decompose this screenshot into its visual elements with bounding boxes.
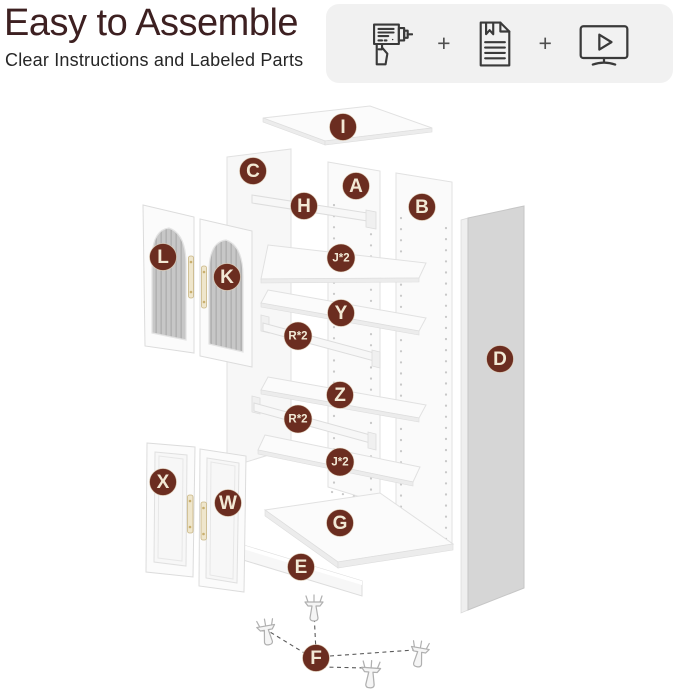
part-glass-door-l <box>143 205 194 353</box>
part-label-i: I <box>330 114 357 141</box>
part-label-d: D <box>487 346 514 373</box>
part-divider-panel-b <box>396 173 452 550</box>
part-panel-door-w <box>199 449 246 592</box>
part-label-z: Z <box>327 382 354 409</box>
part-legs-f <box>256 595 431 688</box>
part-label-w: W <box>215 490 242 517</box>
part-label-g: G <box>327 510 354 537</box>
part-label-h: H <box>291 193 318 220</box>
svg-text:K: K <box>220 267 234 288</box>
part-label-e: E <box>288 554 315 581</box>
part-label-a: A <box>343 173 370 200</box>
svg-text:R*2: R*2 <box>288 331 307 343</box>
svg-text:X: X <box>157 472 170 493</box>
part-glass-door-k <box>200 219 252 367</box>
svg-text:L: L <box>157 247 169 268</box>
svg-text:B: B <box>415 197 429 218</box>
part-label-k: K <box>214 264 241 291</box>
part-label-c: C <box>240 158 267 185</box>
exploded-parts-diagram: ICABHLKJ*2YR*2ZR*2J*2DXWGEF <box>0 0 679 692</box>
svg-text:I: I <box>340 117 345 138</box>
part-label-r2-lower: R*2 <box>284 405 312 433</box>
svg-text:A: A <box>349 176 363 197</box>
svg-text:Z: Z <box>334 385 346 406</box>
svg-text:Y: Y <box>335 303 348 324</box>
svg-text:W: W <box>219 493 237 514</box>
part-label-y: Y <box>328 300 355 327</box>
svg-text:C: C <box>246 161 260 182</box>
svg-text:F: F <box>310 648 322 669</box>
svg-text:H: H <box>297 196 311 217</box>
svg-text:J*2: J*2 <box>332 253 349 265</box>
svg-text:J*2: J*2 <box>331 457 348 469</box>
part-label-r2-upper: R*2 <box>284 322 312 350</box>
part-side-panel-d <box>461 206 524 613</box>
part-label-j2-lower: J*2 <box>326 448 354 476</box>
part-panel-door-x <box>146 443 195 577</box>
part-label-x: X <box>150 469 177 496</box>
svg-text:G: G <box>333 513 348 534</box>
part-label-l: L <box>150 244 177 271</box>
svg-text:R*2: R*2 <box>288 414 307 426</box>
svg-text:D: D <box>493 349 507 370</box>
part-label-f: F <box>303 645 330 672</box>
part-label-j2-upper: J*2 <box>327 244 355 272</box>
svg-text:E: E <box>295 557 308 578</box>
part-label-b: B <box>409 194 436 221</box>
